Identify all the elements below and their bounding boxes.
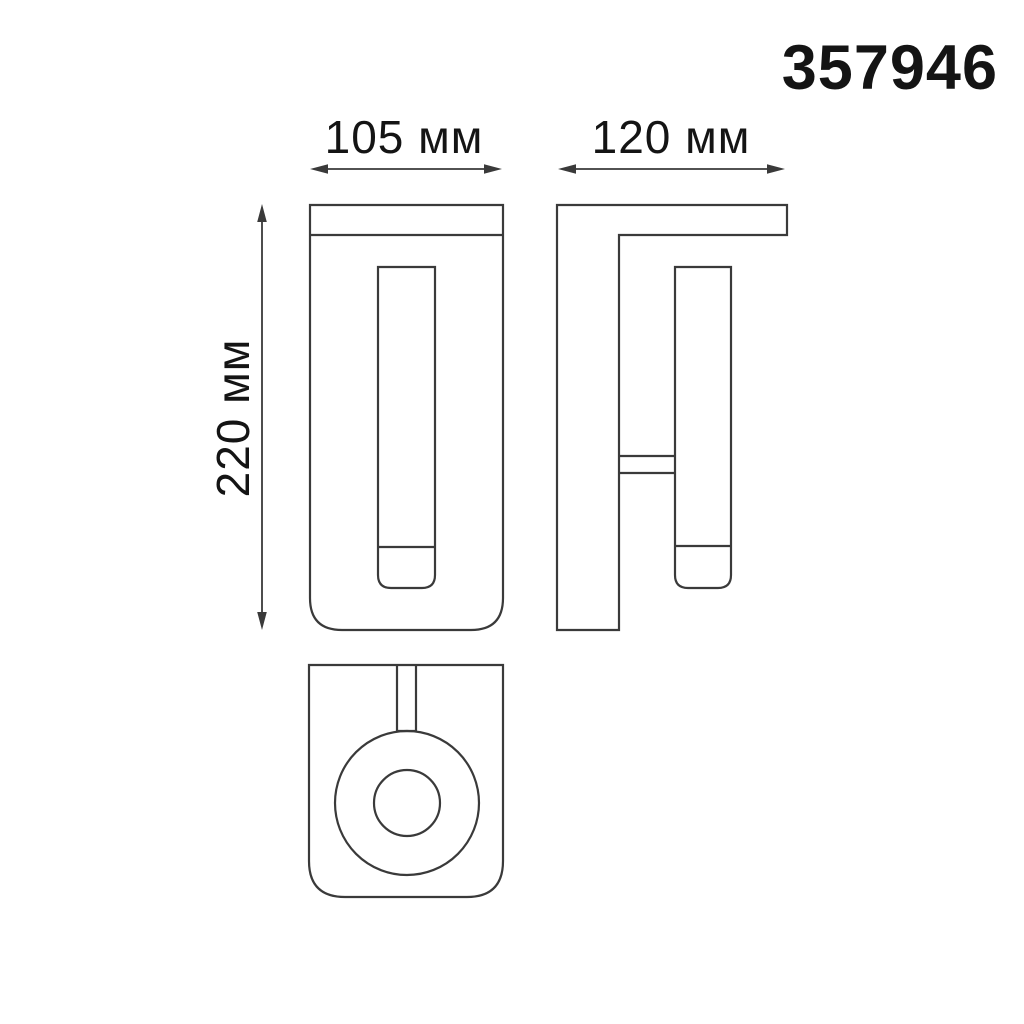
width-dimension-arrowhead-right xyxy=(484,164,502,174)
bottom-view xyxy=(309,665,503,897)
height-dimension-arrowhead-bottom xyxy=(257,612,267,630)
product-code: 357946 xyxy=(782,33,998,103)
side-view-tube-outline xyxy=(675,267,731,588)
height-dimension-arrowhead-top xyxy=(257,204,267,222)
side-view xyxy=(557,205,787,630)
drawing-page: 105 мм 120 мм 220 мм 357946 xyxy=(0,0,1024,1024)
depth-dimension-arrowhead-left xyxy=(558,164,576,174)
height-dimension-label: 220 мм xyxy=(207,339,259,498)
technical-drawing: 105 мм 120 мм 220 мм 357946 xyxy=(0,0,1024,1024)
labels: 105 мм 120 мм 220 мм 357946 xyxy=(207,33,998,497)
side-view-outline xyxy=(557,205,787,630)
front-view xyxy=(310,205,503,630)
front-view-outline xyxy=(310,205,503,630)
bottom-view-inner-circle xyxy=(374,770,440,836)
front-view-diffuser-outline xyxy=(378,267,435,588)
bottom-view-outer-circle xyxy=(335,731,479,875)
depth-dimension-arrowhead-right xyxy=(767,164,785,174)
depth-dimension-label: 120 мм xyxy=(592,111,751,163)
width-dimension-arrowhead-left xyxy=(310,164,328,174)
width-dimension-label: 105 мм xyxy=(325,111,484,163)
